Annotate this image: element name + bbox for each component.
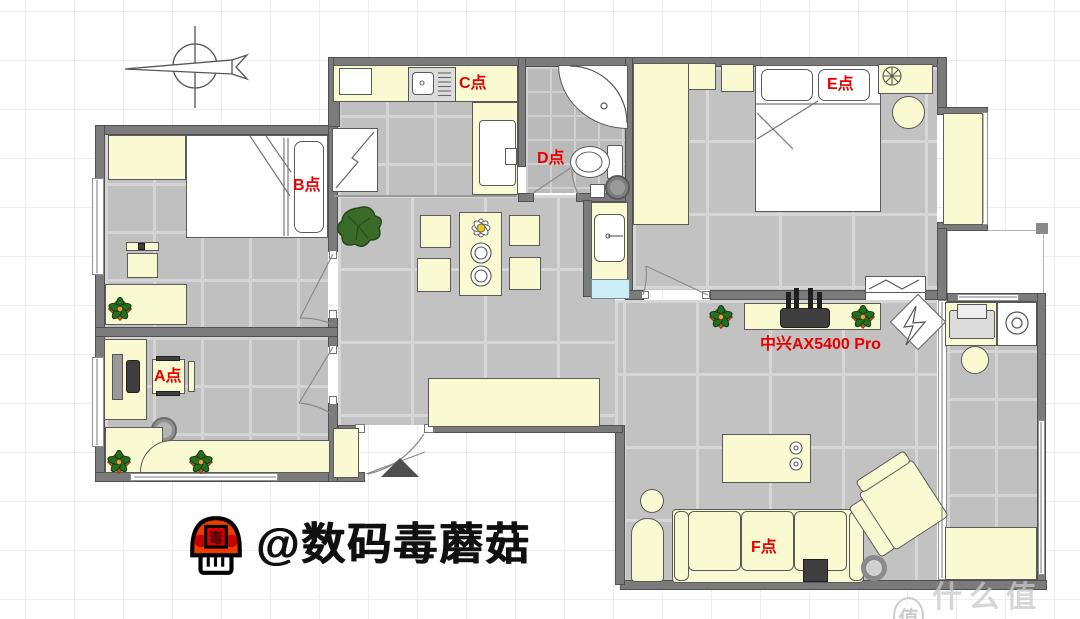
entrance-arrow xyxy=(381,458,419,477)
platform-corner xyxy=(1036,223,1048,234)
door-jamb xyxy=(329,396,337,405)
point-b-label: B点 xyxy=(293,178,321,194)
door-jamb xyxy=(329,310,337,319)
wall-segment xyxy=(615,425,625,585)
wall-segment xyxy=(95,327,338,337)
smzdm-badge: 值 xyxy=(893,597,924,619)
entry-cabinet xyxy=(333,428,359,478)
wall-segment xyxy=(937,228,947,300)
door-jamb xyxy=(702,291,710,299)
dining-chair xyxy=(420,215,451,248)
bath-bin xyxy=(605,175,630,200)
pc-tower xyxy=(126,360,140,393)
floorplan: A点 B点 C点 D点 E点 F点 中兴AX5400 Pro 毒 @数码毒蘑菇 … xyxy=(0,0,1080,619)
author-watermark: 毒 @数码毒蘑菇 xyxy=(184,510,531,580)
bay-window-seat xyxy=(943,113,983,225)
window-counter xyxy=(140,440,330,473)
wall-segment xyxy=(95,125,338,135)
washing-machine xyxy=(997,302,1037,346)
point-d-label: D点 xyxy=(537,151,565,167)
dining-chair xyxy=(509,257,541,290)
master-wardrobe xyxy=(633,63,689,225)
vanity-sink xyxy=(594,214,625,262)
window xyxy=(130,473,278,481)
logo-glyph: 毒 xyxy=(209,529,224,547)
cabinet-handle xyxy=(505,148,517,165)
stool xyxy=(961,346,989,374)
router-label: 中兴AX5400 Pro xyxy=(760,337,881,353)
desk-panel xyxy=(188,361,195,392)
bath-mat xyxy=(591,279,630,299)
nightstand xyxy=(878,64,933,94)
chair-armrest xyxy=(156,391,180,396)
smzdm-watermark: 值 什么值得买 xyxy=(893,572,1080,619)
point-c-label: C点 xyxy=(459,76,487,92)
wall-segment xyxy=(518,57,526,167)
radiator xyxy=(865,276,926,293)
window xyxy=(1038,420,1045,575)
floor-lamp-body xyxy=(631,518,664,582)
dining-chair xyxy=(509,215,540,246)
mushroom-logo-icon: 毒 xyxy=(184,510,248,580)
toilet-bowl xyxy=(570,146,610,178)
chair-armrest xyxy=(156,356,180,361)
author-handle: @数码毒蘑菇 xyxy=(256,523,531,567)
side-table-dark xyxy=(803,559,828,582)
floor-lamp-head xyxy=(640,489,664,513)
point-e-label: E点 xyxy=(827,77,854,93)
wall-segment xyxy=(937,57,947,111)
round-side-table xyxy=(892,96,925,129)
living-room-floor xyxy=(615,300,623,425)
wall-segment xyxy=(518,193,534,202)
washer-lid xyxy=(957,304,987,319)
door-jamb xyxy=(329,250,337,259)
window xyxy=(92,178,104,275)
dining-table xyxy=(459,212,502,296)
door-jamb xyxy=(641,291,649,299)
bath-box xyxy=(590,184,605,198)
window xyxy=(957,294,1019,301)
sideboard xyxy=(428,378,600,427)
point-a-label: A点 xyxy=(154,369,182,385)
sink-basin xyxy=(412,72,434,95)
sofa-armrest xyxy=(674,511,689,581)
coffee-table xyxy=(722,434,811,483)
point-f-label: F点 xyxy=(751,540,777,556)
north-arrow xyxy=(125,26,247,108)
fridge xyxy=(332,128,378,192)
chair xyxy=(127,253,158,278)
kitchen-appliance xyxy=(339,68,372,95)
nightstand xyxy=(721,64,754,92)
pillow xyxy=(761,69,813,101)
sofa-cushion xyxy=(688,511,741,571)
monitor xyxy=(112,354,123,400)
window-bench xyxy=(105,284,187,325)
door-jamb xyxy=(329,345,337,354)
window xyxy=(92,357,104,447)
desk-lamp xyxy=(138,243,145,250)
master-wardrobe xyxy=(688,63,716,90)
smzdm-text: 什么值得买 xyxy=(932,572,1080,619)
floor-pot xyxy=(861,555,887,581)
wardrobe xyxy=(108,135,186,180)
ac-platform xyxy=(947,230,1044,295)
dining-chair xyxy=(417,258,451,292)
router xyxy=(780,308,830,328)
